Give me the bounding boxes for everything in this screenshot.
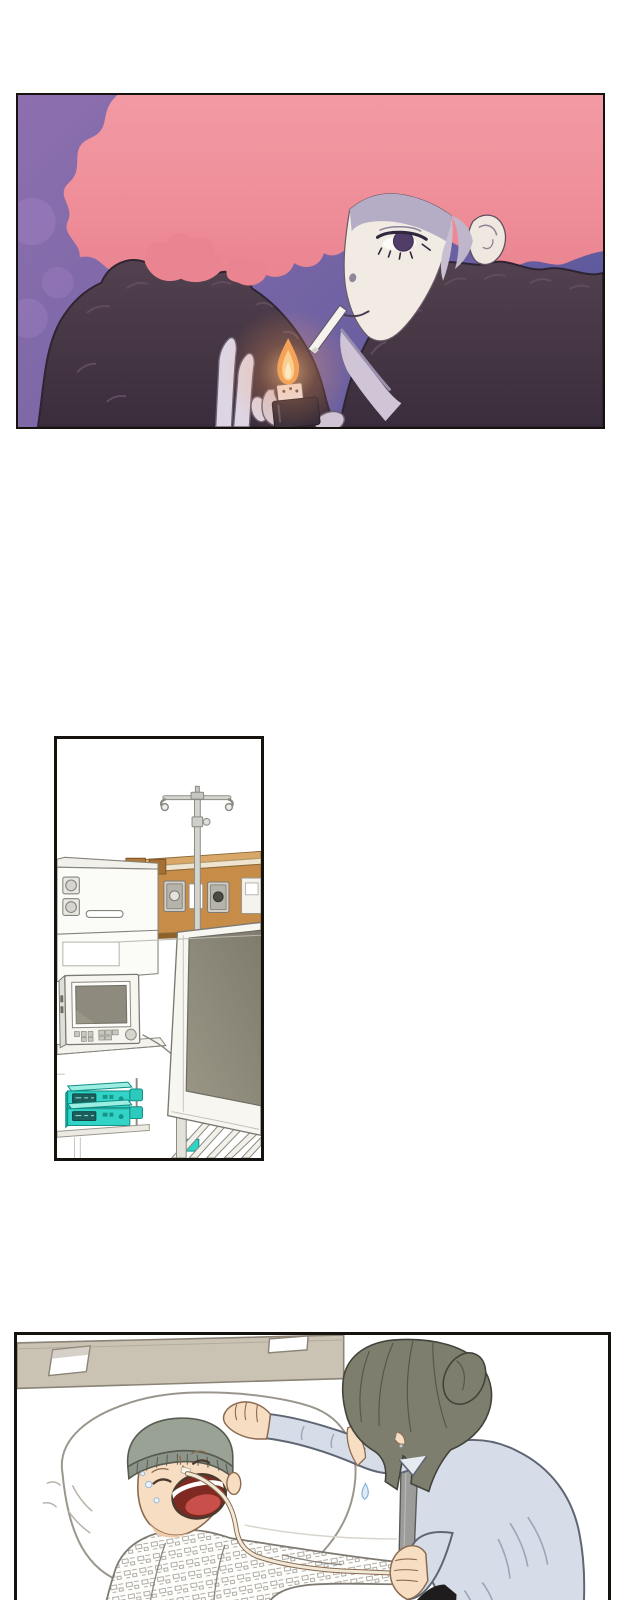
- pump-clamp: [130, 1107, 143, 1119]
- socket-plate-1: [164, 881, 185, 912]
- pump-clamp: [130, 1089, 143, 1101]
- ear: [227, 1473, 241, 1495]
- iv-pole-clamp: [192, 817, 203, 827]
- tv-screen: [186, 930, 261, 1105]
- socket-plate-2: [208, 882, 229, 913]
- socket-plate-3: [242, 878, 261, 913]
- comic-panel-bedside: [14, 1332, 611, 1600]
- iv-hook-right: [226, 804, 233, 811]
- wall-strip: [17, 1335, 344, 1388]
- iv-hook-left: [161, 804, 168, 811]
- webtoon-page: { "page": { "kind": "webtoon comic page"…: [0, 0, 620, 1600]
- earring: [399, 1444, 403, 1448]
- comic-panel-equipment: [54, 736, 264, 1161]
- comic-panel-smoker: [16, 93, 605, 429]
- cabinet-handle: [86, 911, 123, 918]
- wall-cabinet: [57, 857, 158, 981]
- wall-cutout-right: [268, 1336, 308, 1353]
- patient-monitor: [59, 974, 140, 1047]
- wall-sockets: [164, 878, 261, 913]
- monitor-dial: [125, 1029, 136, 1040]
- bedside-tv: [168, 922, 261, 1135]
- wall-cutout-left: [49, 1346, 91, 1376]
